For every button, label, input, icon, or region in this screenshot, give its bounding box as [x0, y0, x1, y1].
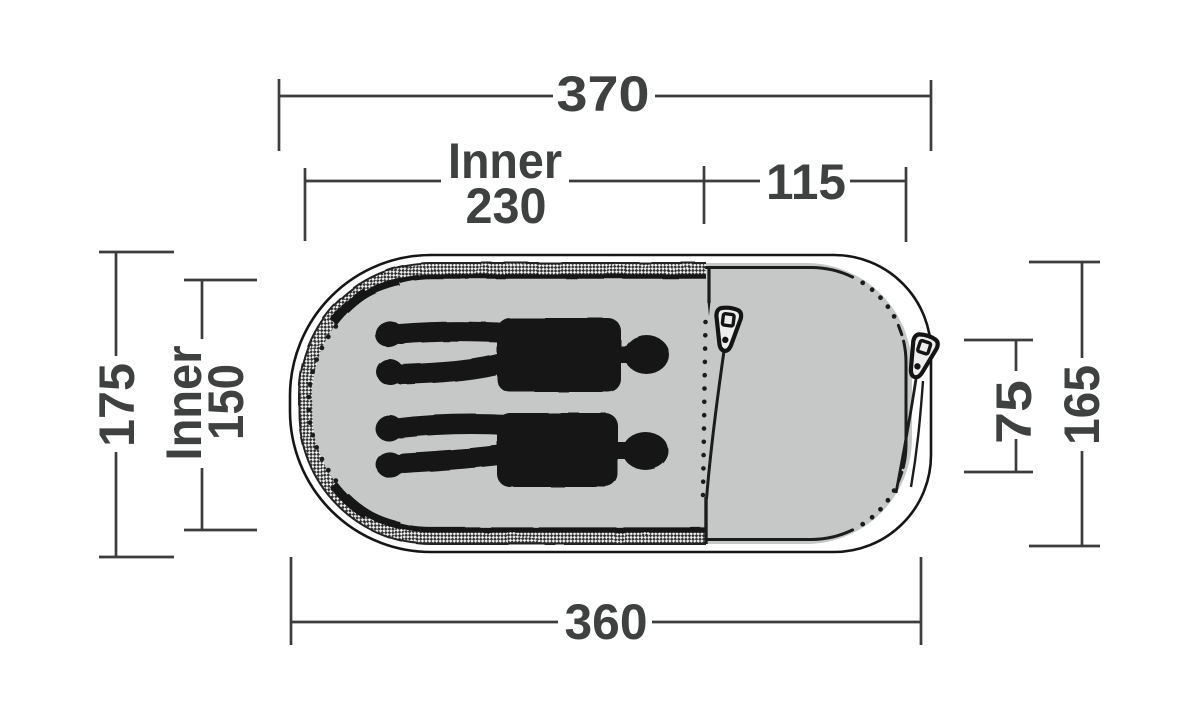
svg-text:230: 230 [466, 178, 547, 234]
svg-text:360: 360 [565, 594, 648, 650]
svg-text:175: 175 [89, 363, 145, 447]
svg-text:115: 115 [766, 154, 846, 210]
svg-text:370: 370 [557, 66, 650, 122]
svg-text:75: 75 [986, 380, 1042, 444]
svg-text:165: 165 [1054, 365, 1110, 445]
svg-text:150: 150 [198, 364, 254, 440]
